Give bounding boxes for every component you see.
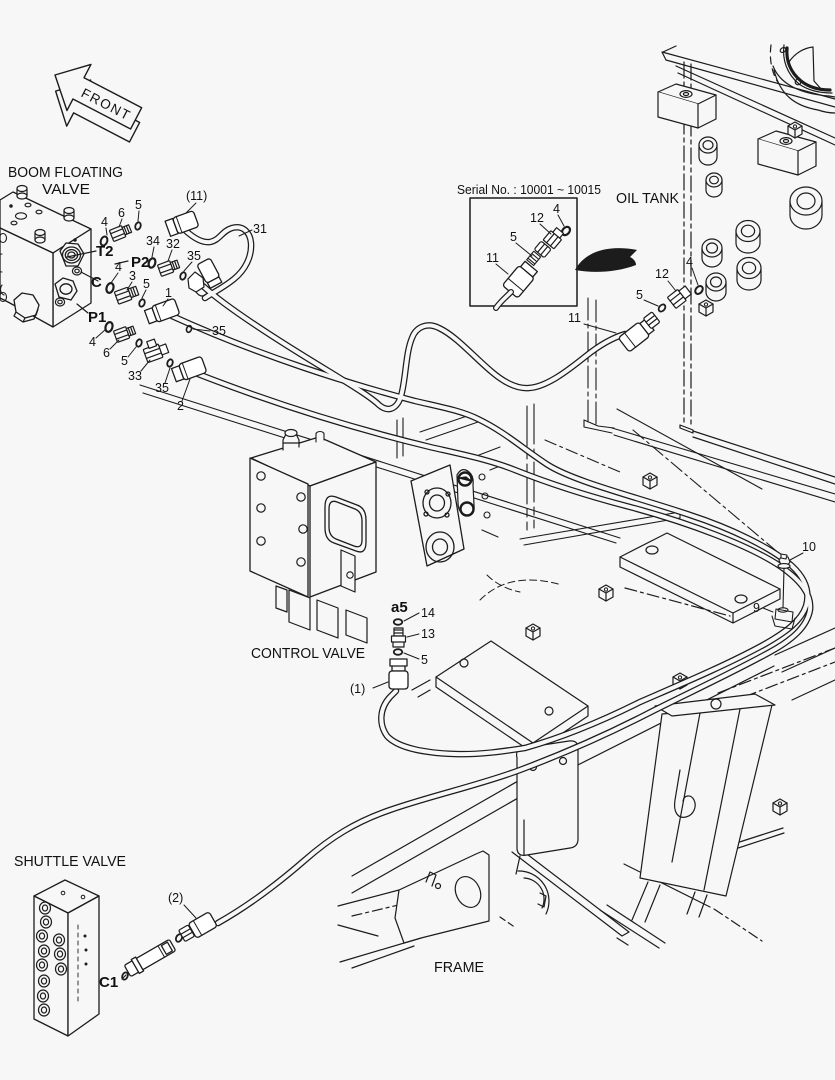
svg-text:6: 6 [103, 346, 110, 360]
svg-text:12: 12 [530, 211, 544, 225]
svg-text:5: 5 [121, 354, 128, 368]
svg-text:35: 35 [187, 249, 201, 263]
svg-text:5: 5 [135, 198, 142, 212]
svg-text:11: 11 [568, 311, 581, 325]
svg-text:T2: T2 [96, 243, 114, 260]
svg-text:a5: a5 [391, 599, 408, 616]
svg-text:10: 10 [802, 540, 816, 554]
svg-text:13: 13 [421, 627, 435, 641]
svg-text:Serial No. : 10001 ~ 10015: Serial No. : 10001 ~ 10015 [457, 183, 601, 197]
svg-text:3: 3 [129, 269, 136, 283]
svg-text:33: 33 [128, 369, 142, 383]
svg-text:OIL TANK: OIL TANK [616, 191, 679, 207]
svg-text:9: 9 [753, 601, 760, 615]
svg-text:6: 6 [118, 206, 125, 220]
svg-text:(11): (11) [186, 189, 207, 203]
svg-text:(1): (1) [350, 682, 365, 696]
svg-text:5: 5 [421, 653, 428, 667]
svg-text:5: 5 [143, 277, 150, 291]
svg-text:4: 4 [553, 202, 560, 216]
svg-text:4: 4 [101, 215, 108, 229]
svg-text:VALVE: VALVE [42, 182, 90, 198]
svg-text:BOOM FLOATING: BOOM FLOATING [8, 165, 123, 181]
svg-text:14: 14 [421, 606, 435, 620]
svg-text:(2): (2) [168, 891, 183, 905]
svg-text:12: 12 [655, 267, 669, 281]
svg-text:5: 5 [510, 230, 517, 244]
svg-text:CONTROL VALVE: CONTROL VALVE [251, 646, 365, 662]
svg-text:2: 2 [177, 399, 184, 413]
svg-text:1: 1 [165, 286, 172, 300]
svg-text:FRAME: FRAME [434, 960, 484, 976]
svg-text:35: 35 [212, 324, 226, 338]
svg-text:4: 4 [115, 260, 122, 274]
svg-text:4: 4 [89, 335, 96, 349]
svg-text:31: 31 [253, 222, 267, 236]
svg-text:5: 5 [636, 288, 643, 302]
svg-text:4: 4 [686, 255, 693, 269]
svg-text:C1: C1 [99, 974, 118, 991]
svg-text:P1: P1 [88, 309, 106, 326]
svg-text:11: 11 [486, 251, 499, 265]
svg-text:SHUTTLE VALVE: SHUTTLE VALVE [14, 854, 126, 870]
svg-text:C: C [91, 274, 102, 291]
svg-text:34: 34 [146, 234, 160, 248]
svg-text:35: 35 [155, 381, 169, 395]
svg-text:32: 32 [166, 237, 180, 251]
